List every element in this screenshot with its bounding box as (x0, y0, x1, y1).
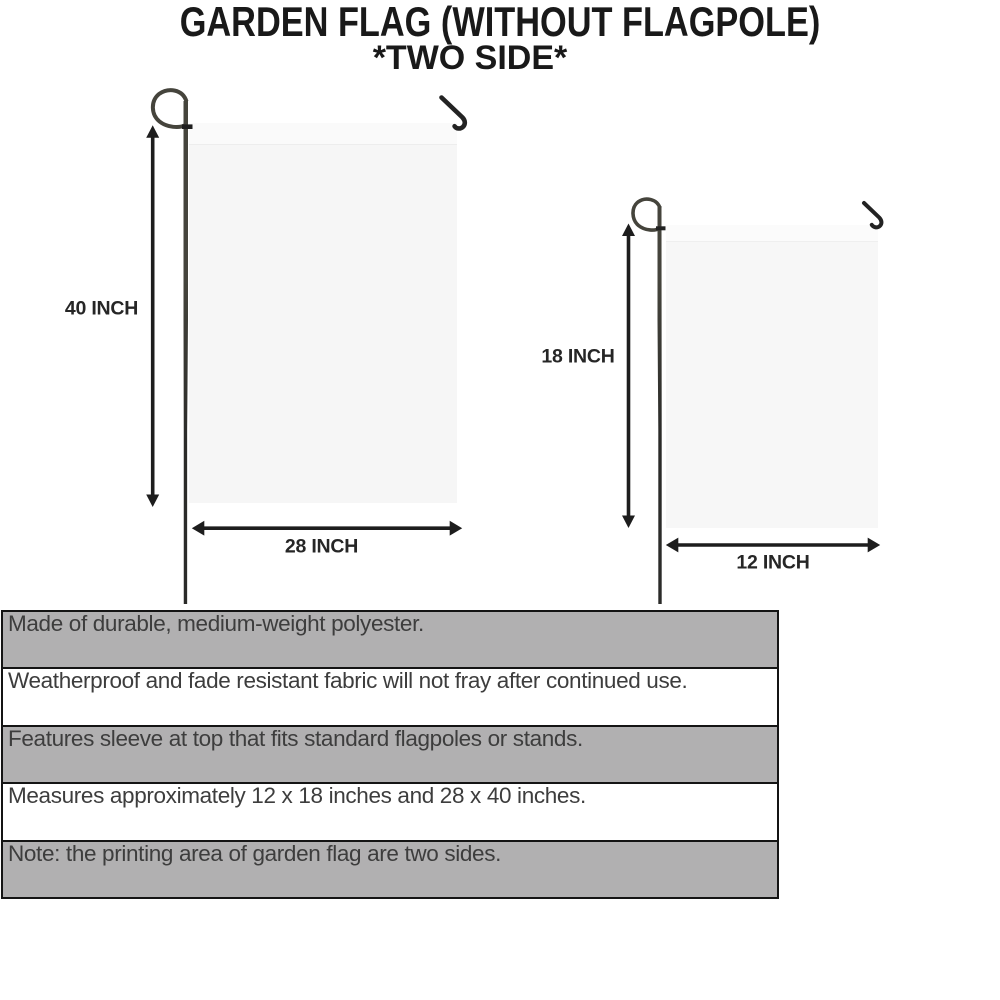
svg-text:40 INCH: 40 INCH (65, 297, 138, 319)
svg-text:12 INCH: 12 INCH (736, 551, 809, 573)
svg-text:28 INCH: 28 INCH (285, 535, 358, 557)
svg-text:18 INCH: 18 INCH (541, 345, 614, 367)
